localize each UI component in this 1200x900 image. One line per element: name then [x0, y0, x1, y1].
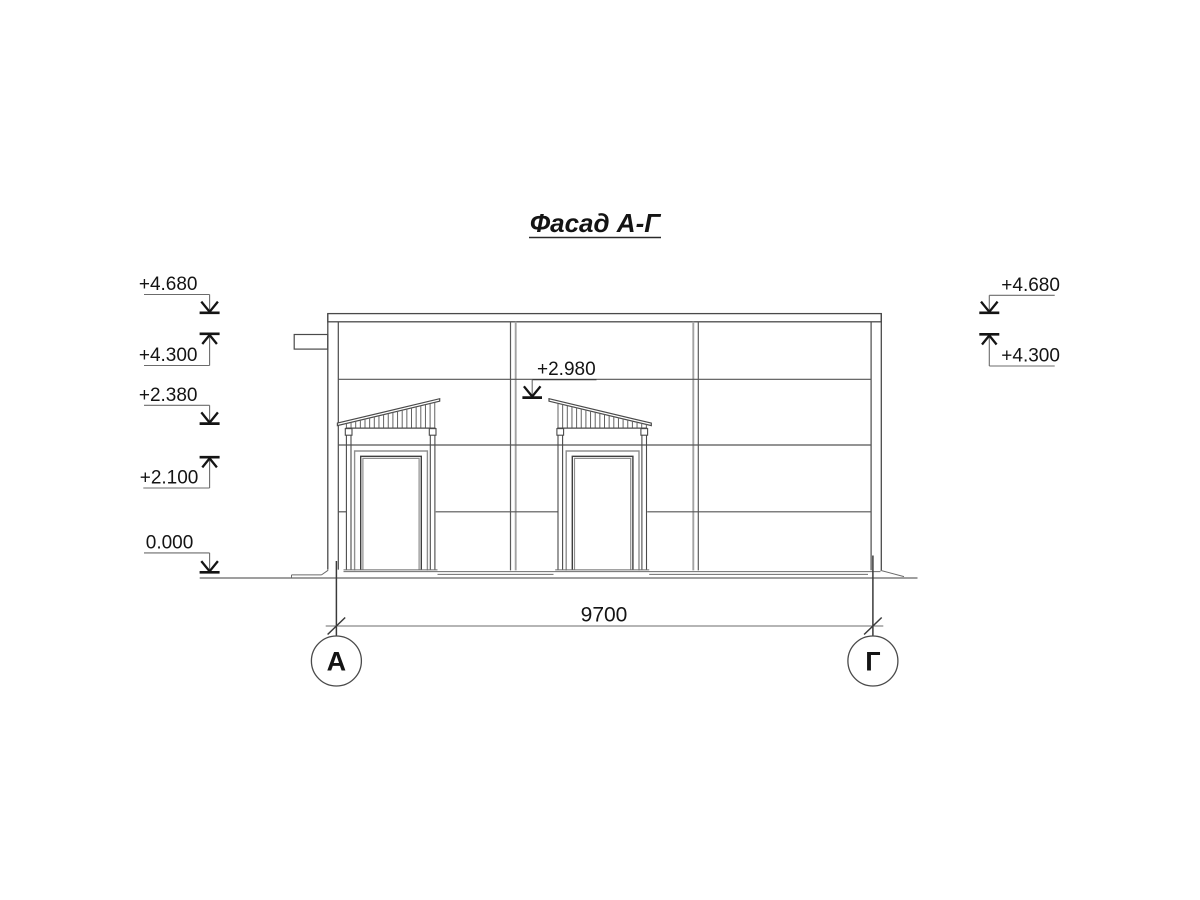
- svg-text:+2.980: +2.980: [537, 359, 596, 380]
- svg-text:Г: Г: [865, 647, 880, 677]
- svg-text:+2.100: +2.100: [140, 468, 199, 489]
- svg-text:+4.680: +4.680: [1001, 275, 1060, 296]
- svg-text:+2.380: +2.380: [139, 385, 198, 406]
- svg-text:+4.300: +4.300: [1001, 346, 1060, 367]
- svg-text:9700: 9700: [581, 604, 628, 627]
- svg-text:Фасад А-Г: Фасад А-Г: [530, 208, 661, 238]
- svg-text:+4.300: +4.300: [139, 345, 198, 366]
- svg-text:А: А: [327, 647, 347, 677]
- svg-text:+4.680: +4.680: [139, 274, 198, 295]
- svg-text:0.000: 0.000: [146, 532, 194, 553]
